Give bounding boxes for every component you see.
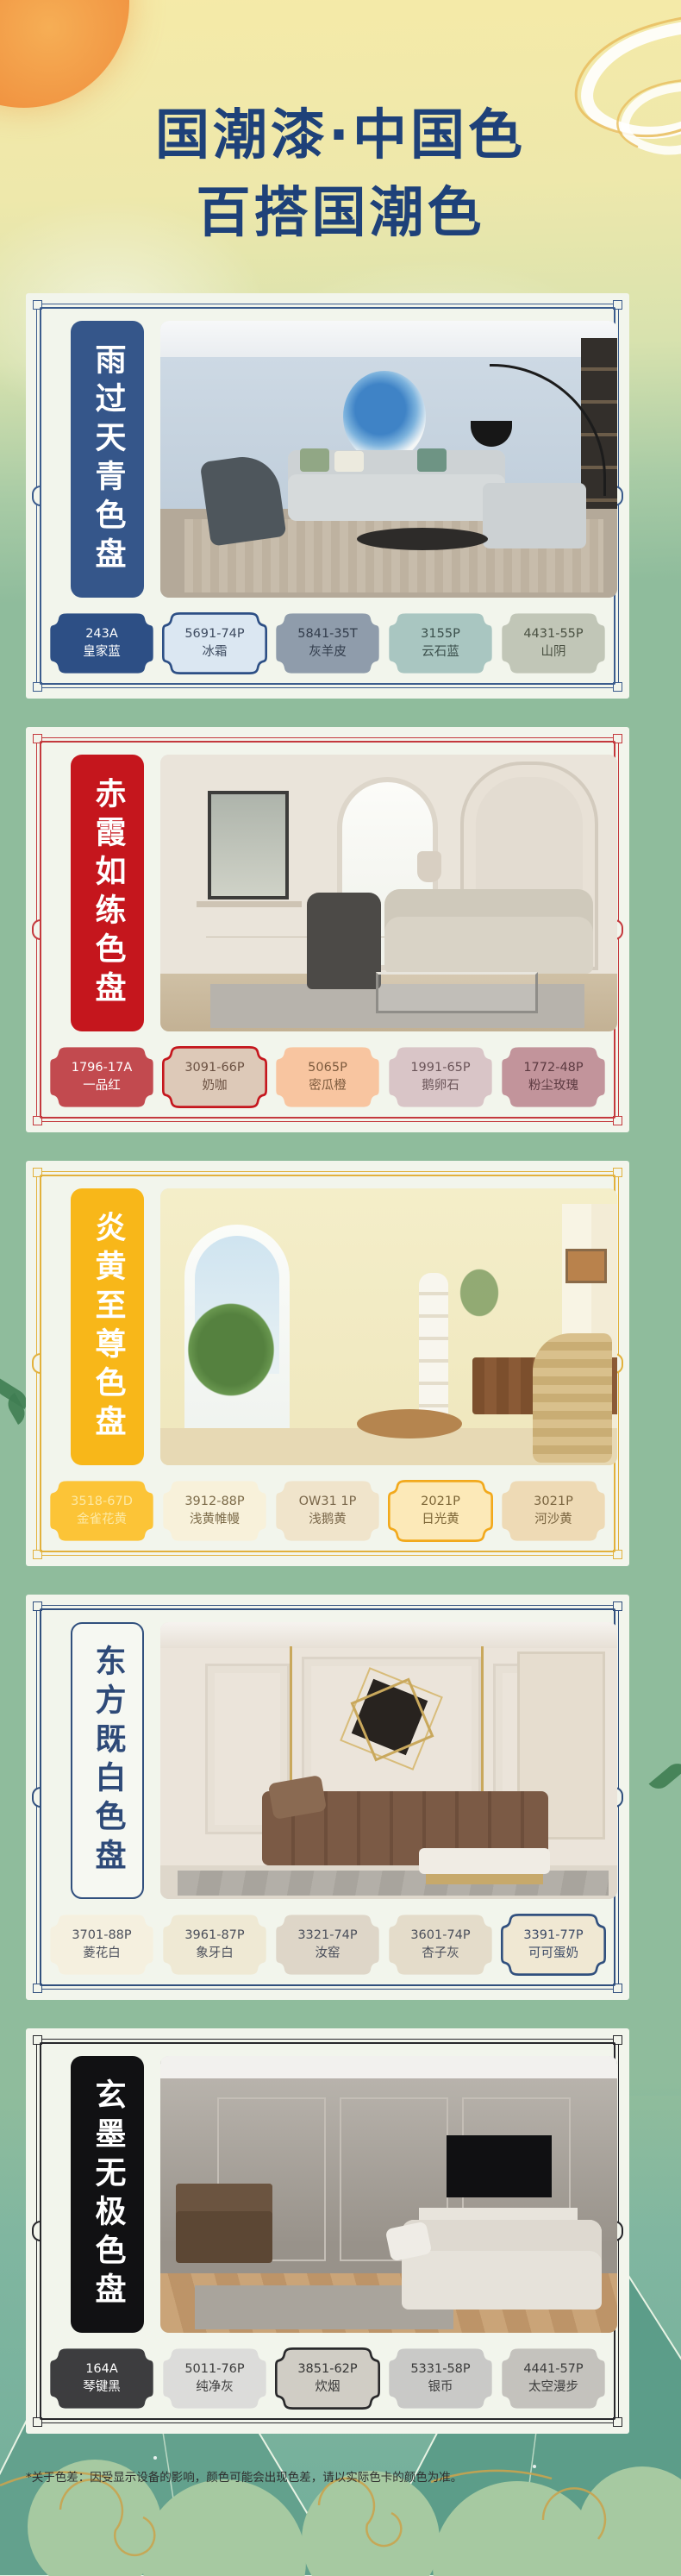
swatch-code: 3155P: [421, 627, 460, 642]
swatch-name: 炊烟: [316, 2380, 340, 2395]
frame-side-ornament: [32, 2221, 41, 2241]
palette-card-yuguotianqing: 雨过天青色盘 243A皇家蓝 5691-74P冰霜: [26, 293, 629, 699]
swatch-code: 1772-48P: [523, 1061, 583, 1075]
room-photo: [160, 1188, 617, 1465]
frame-corner-ornament: [33, 1984, 42, 1993]
swatch-code: 2021P: [421, 1495, 460, 1509]
frame-corner-ornament: [613, 1550, 622, 1559]
frame-corner-ornament: [33, 2035, 42, 2045]
color-swatch: 164A琴键黑: [49, 2347, 154, 2410]
color-swatch: 3601-74P杏子灰: [388, 1914, 493, 1976]
color-swatch: 1796-17A一品红: [49, 1046, 154, 1108]
swatch-code: 4441-57P: [523, 2362, 583, 2377]
frame-corner-ornament: [613, 2417, 622, 2427]
palette-card-xuanmowuji: 玄墨无极色盘 164A琴键黑 5011-76P纯净灰: [26, 2028, 629, 2434]
palette-title-banner: 赤霞如练色盘: [71, 755, 144, 1031]
room-scene-neoclassic-beige: [160, 1622, 617, 1899]
swatch-name: 奶咖: [203, 1079, 228, 1094]
swatch-row: 1796-17A一品红 3091-66P奶咖 5065P密瓜橙 1991-65P…: [49, 1046, 606, 1108]
swatch-name: 菱花白: [83, 1946, 121, 1961]
frame-corner-ornament: [613, 1984, 622, 1993]
swatch-name: 一品红: [83, 1079, 121, 1094]
swatch-name: 鹅卵石: [422, 1079, 459, 1094]
frame-corner-ornament: [613, 734, 622, 743]
color-swatch: 3912-88P浅黄帷幔: [162, 1480, 267, 1542]
color-swatch: 3021P河沙黄: [501, 1480, 606, 1542]
color-disclaimer-note: *关于色差：因受显示设备的影响，颜色可能会出现色差，请以实际色卡的颜色为准。: [26, 2467, 655, 2485]
frame-corner-ornament: [33, 1550, 42, 1559]
frame-side-ornament: [32, 1353, 41, 1374]
color-swatch: 3701-88P菱花白: [49, 1914, 154, 1976]
swatch-code: 5065P: [308, 1061, 347, 1075]
palette-title: 雨过天青色盘: [92, 343, 123, 576]
swatch-code: 1796-17A: [72, 1061, 133, 1075]
swatch-code: 5011-76P: [184, 2362, 244, 2377]
swatch-code: 3912-88P: [184, 1495, 244, 1509]
swatch-name: 琴键黑: [83, 2380, 121, 2395]
color-swatch: 5011-76P纯净灰: [162, 2347, 267, 2410]
palette-title: 东方既白色盘: [92, 1645, 123, 1877]
frame-corner-ornament: [613, 1116, 622, 1125]
color-swatch: 3518-67D金雀花黄: [49, 1480, 154, 1542]
swatch-name: 浅黄帷幔: [190, 1513, 240, 1527]
swatch-name: 粉尘玫瑰: [528, 1079, 578, 1094]
swatch-name: 银币: [428, 2380, 453, 2395]
palette-title: 炎黄至尊色盘: [92, 1211, 123, 1444]
palette-title-banner: 玄墨无极色盘: [71, 2056, 144, 2333]
swatch-name: 杏子灰: [422, 1946, 459, 1961]
swatch-name: 金雀花黄: [77, 1513, 127, 1527]
main-title-line2: 百搭国潮色: [0, 176, 681, 250]
room-photo: [160, 755, 617, 1031]
room-photo: [160, 2056, 617, 2333]
room-scene-cream-classic: [160, 755, 617, 1031]
color-swatch: 5331-58P银币: [388, 2347, 493, 2410]
swatch-name: 冰霜: [203, 645, 228, 660]
swatch-code: 3601-74P: [410, 1928, 470, 1943]
swatch-code: 5331-58P: [410, 2362, 470, 2377]
swatch-code: 1991-65P: [410, 1061, 470, 1075]
swatch-code: 3961-87P: [184, 1928, 244, 1943]
color-swatch: 3391-77P可可蛋奶: [501, 1914, 606, 1976]
color-swatch: 4431-55P山阴: [501, 612, 606, 674]
room-scene-ink-grey: [160, 2056, 617, 2333]
swatch-code: 5841-35T: [297, 627, 357, 642]
color-swatch: 2021P日光黄: [388, 1480, 493, 1542]
color-swatch: OW31 1P浅鹅黄: [275, 1480, 380, 1542]
swatch-code: 3321-74P: [297, 1928, 357, 1943]
swatch-name: 浅鹅黄: [309, 1513, 347, 1527]
frame-corner-ornament: [33, 734, 42, 743]
swatch-row: 164A琴键黑 5011-76P纯净灰 3851-62P炊烟 5331-58P银…: [49, 2347, 606, 2410]
frame-corner-ornament: [33, 1168, 42, 1177]
frame-corner-ornament: [33, 1601, 42, 1611]
frame-corner-ornament: [613, 1168, 622, 1177]
swatch-name: 云石蓝: [422, 645, 459, 660]
color-swatch: 3091-66P奶咖: [162, 1046, 267, 1108]
poster-root: 国潮漆·中国色 百搭国潮色 雨过天青色盘: [0, 0, 681, 2576]
sun-illustration: [0, 0, 129, 108]
palette-card-chixiarulian: 赤霞如练色盘 1796-17A一品红 3091-66P奶咖: [26, 727, 629, 1132]
swatch-name: 河沙黄: [534, 1513, 572, 1527]
swatch-name: 密瓜橙: [309, 1079, 347, 1094]
swatch-name: 皇家蓝: [83, 645, 121, 660]
room-photo: [160, 321, 617, 598]
room-scene-blue-livingroom: [160, 321, 617, 598]
swatch-name: 日光黄: [422, 1513, 459, 1527]
palette-card-dongfangjibai: 东方既白色盘 3701-88P菱花白 3961-87P象牙白: [26, 1595, 629, 2000]
swatch-name: 纯净灰: [196, 2380, 234, 2395]
swatch-code: 3091-66P: [184, 1061, 244, 1075]
color-swatch: 5691-74P冰霜: [162, 612, 267, 674]
swatch-name: 象牙白: [196, 1946, 234, 1961]
frame-side-ornament: [32, 1787, 41, 1808]
color-swatch: 3155P云石蓝: [388, 612, 493, 674]
palette-title-banner: 东方既白色盘: [71, 1622, 144, 1899]
palette-title-banner: 雨过天青色盘: [71, 321, 144, 598]
color-swatch: 3851-62P炊烟: [275, 2347, 380, 2410]
palette-title-banner: 炎黄至尊色盘: [71, 1188, 144, 1465]
swatch-row: 243A皇家蓝 5691-74P冰霜 5841-35T灰羊皮 3155P云石蓝 …: [49, 612, 606, 674]
color-swatch: 1772-48P粉尘玫瑰: [501, 1046, 606, 1108]
palette-title: 赤霞如练色盘: [92, 777, 123, 1010]
room-photo: [160, 1622, 617, 1899]
palette-title: 玄墨无极色盘: [92, 2078, 123, 2311]
color-swatch: 4441-57P太空漫步: [501, 2347, 606, 2410]
swatch-name: 汝窑: [316, 1946, 340, 1961]
frame-corner-ornament: [33, 2417, 42, 2427]
room-scene-warm-yellow: [160, 1188, 617, 1465]
swatch-row: 3518-67D金雀花黄 3912-88P浅黄帷幔 OW31 1P浅鹅黄 202…: [49, 1480, 606, 1542]
color-swatch: 3961-87P象牙白: [162, 1914, 267, 1976]
swatch-name: 灰羊皮: [309, 645, 347, 660]
swatch-name: 太空漫步: [528, 2380, 578, 2395]
swatch-code: 243A: [85, 627, 118, 642]
color-swatch: 5841-35T灰羊皮: [275, 612, 380, 674]
swatch-name: 山阴: [541, 645, 566, 660]
frame-corner-ornament: [613, 2035, 622, 2045]
swatch-name: 可可蛋奶: [528, 1946, 578, 1961]
swatch-code: OW31 1P: [299, 1495, 357, 1509]
swatch-code: 3021P: [534, 1495, 573, 1509]
frame-side-ornament: [32, 486, 41, 506]
swatch-code: 3701-88P: [72, 1928, 131, 1943]
frame-corner-ornament: [613, 1601, 622, 1611]
main-title-line1: 国潮漆·中国色: [0, 98, 681, 172]
swatch-code: 3518-67D: [71, 1495, 133, 1509]
swatch-code: 3851-62P: [297, 2362, 357, 2377]
color-swatch: 1991-65P鹅卵石: [388, 1046, 493, 1108]
frame-corner-ornament: [33, 1116, 42, 1125]
swatch-code: 3391-77P: [523, 1928, 583, 1943]
swatch-code: 5691-74P: [184, 627, 244, 642]
swatch-code: 4431-55P: [523, 627, 583, 642]
bamboo-leaf: [649, 1758, 681, 1794]
frame-corner-ornament: [33, 682, 42, 692]
swatch-code: 164A: [85, 2362, 118, 2377]
swatch-row: 3701-88P菱花白 3961-87P象牙白 3321-74P汝窑 3601-…: [49, 1914, 606, 1976]
palette-card-yanhuangzhizun: 炎黄至尊色盘 3518-67D金雀花黄 3912-88P浅黄帷幔: [26, 1161, 629, 1566]
color-swatch: 243A皇家蓝: [49, 612, 154, 674]
frame-corner-ornament: [613, 300, 622, 310]
color-swatch: 5065P密瓜橙: [275, 1046, 380, 1108]
frame-corner-ornament: [33, 300, 42, 310]
color-swatch: 3321-74P汝窑: [275, 1914, 380, 1976]
frame-corner-ornament: [613, 682, 622, 692]
frame-side-ornament: [32, 919, 41, 940]
